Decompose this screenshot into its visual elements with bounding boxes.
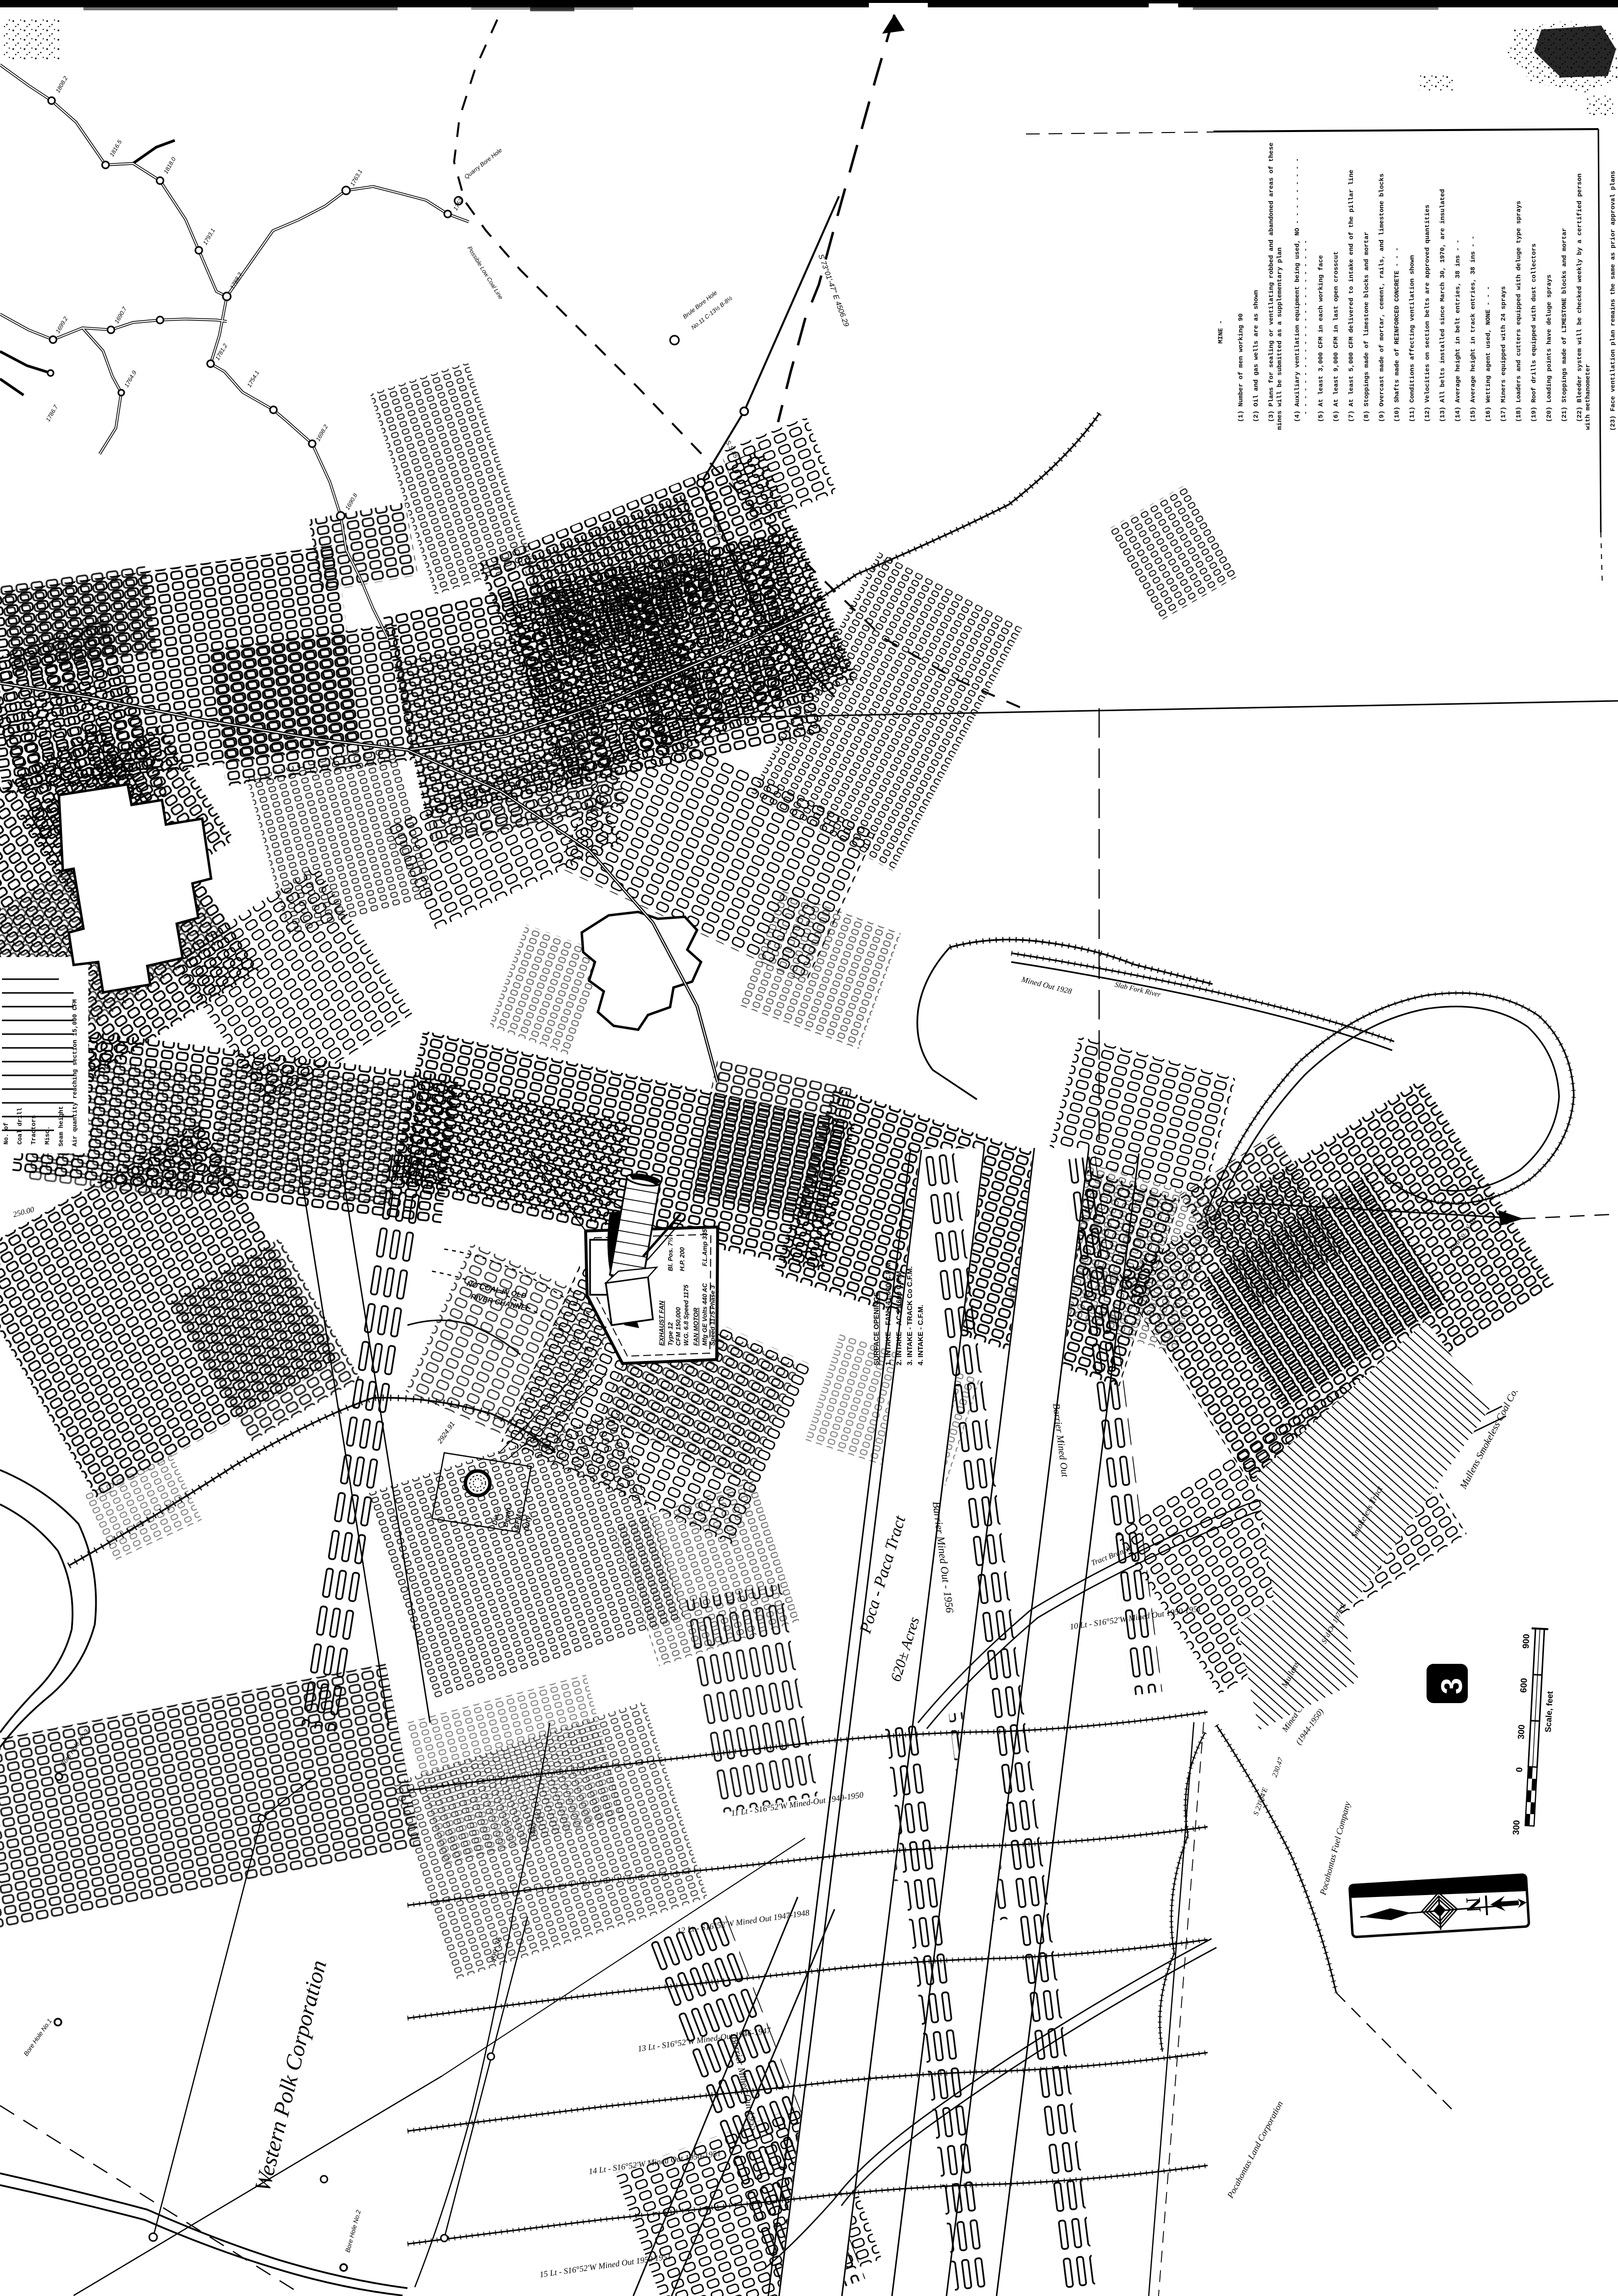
- svg-text:3: 3: [1435, 1678, 1468, 1694]
- svg-text:(5) At least 3,000 CFM in eac: (5) At least 3,000 CFM in each working f…: [1317, 255, 1324, 422]
- svg-text:300: 300: [1511, 1820, 1522, 1835]
- svg-text:H.P. 200: H.P. 200: [678, 1247, 686, 1271]
- svg-text:Bl. Pos. 7½: Bl. Pos. 7½: [667, 1237, 674, 1271]
- svg-text:(11) Conditions affecting vent: (11) Conditions affecting ventilation sh…: [1408, 255, 1416, 422]
- svg-text:(1) Number of men working 9: (1) Number of men working 90: [1237, 313, 1244, 422]
- svg-text:mines will be submitted as a s: mines will be submitted as a supplementa…: [1276, 247, 1283, 430]
- svg-text:Type 12: Type 12: [667, 1322, 674, 1346]
- svg-text:(15) Average height in track e: (15) Average height in track entries, 38…: [1469, 236, 1477, 422]
- svg-text:300: 300: [1516, 1724, 1527, 1739]
- svg-text:3. INTAKE - TRACK Co C.: 3. INTAKE - TRACK Co C.F.M.: [906, 1266, 914, 1365]
- svg-text:(19) Roof drills equipped with: (19) Roof drills equipped with dust coll…: [1530, 243, 1537, 422]
- svg-text:with methanometer: with methanometer: [1584, 364, 1591, 430]
- svg-text:0: 0: [1514, 1767, 1524, 1772]
- svg-text:(22) Bleeder system will be ch: (22) Bleeder system will be checked week…: [1576, 173, 1583, 422]
- svg-text:(12) Velocities on section bel: (12) Velocities on section belts are app…: [1424, 205, 1431, 422]
- svg-text:- - - - - - - - - - - - - - -: - - - - - - - - - - - - - - - - - - - - …: [1302, 240, 1309, 415]
- svg-text:(13) All belts installed since: (13) All belts installed since March 30,…: [1439, 189, 1446, 422]
- svg-text:(7) At least 5,000 CFM delive: (7) At least 5,000 CFM delivered to inta…: [1348, 170, 1355, 422]
- svg-text:(18) Loaders and cutters equip: (18) Loaders and cutters equipped with d…: [1515, 201, 1522, 422]
- svg-text:F.L.Amp 335: F.L.Amp 335: [701, 1228, 708, 1266]
- svg-text:(14) Average height in belt en: (14) Average height in belt entries, 38 …: [1454, 240, 1461, 422]
- svg-text:Tractors: Tractors: [30, 1115, 37, 1145]
- svg-text:600: 600: [1518, 1678, 1529, 1693]
- svg-text:FAN MOTOR: FAN MOTOR: [692, 1308, 700, 1346]
- svg-text:Speed 1175 Phase 3: Speed 1175 Phase 3: [709, 1285, 716, 1346]
- svg-text:(3) Plans for sealing or vent: (3) Plans for sealing or ventilating rob…: [1267, 142, 1275, 422]
- svg-text:(16) Wetting agent used, NON: (16) Wetting agent used, NONE - - -: [1484, 286, 1492, 422]
- svg-text:4. INTAKE - C.: 4. INTAKE - C.F.M.: [917, 1305, 925, 1365]
- svg-text:(2) Oil and gas wells are as: (2) Oil and gas wells are as shown: [1252, 290, 1260, 422]
- svg-text:SURFACE OPENINGS: SURFACE OPENINGS: [873, 1292, 881, 1365]
- svg-text:EXHAUST FAN: EXHAUST FAN: [658, 1301, 665, 1346]
- svg-text:No. of: No. of: [3, 1122, 10, 1145]
- svg-text:(4) Auxiliary ventilation equ: (4) Auxiliary ventilation equipment bein…: [1294, 158, 1301, 422]
- svg-text:(9) Overcast made of mortar,: (9) Overcast made of mortar, cement, rai…: [1378, 173, 1385, 422]
- svg-text:Seam height: Seam height: [58, 1106, 65, 1147]
- svg-text:Coal drill: Coal drill: [17, 1108, 24, 1145]
- svg-text:(17) Miners equipped with 24: (17) Miners equipped with 24 sprays: [1500, 286, 1507, 422]
- svg-text:N: N: [1461, 1896, 1485, 1913]
- svg-text:(20) Loading points have delug: (20) Loading points have deluge sprays: [1545, 274, 1553, 422]
- svg-text:(8) Stoppings made of limesto: (8) Stoppings made of limestone blocks a…: [1363, 232, 1370, 422]
- svg-text:1. INTAKE - FAN 141,600 C.: 1. INTAKE - FAN 141,600 C.F.M.: [885, 1261, 892, 1365]
- svg-text:MINE -: MINE -: [1217, 320, 1224, 344]
- svg-text:900: 900: [1521, 1633, 1532, 1649]
- svg-text:W.G. 6.8 Speed 1175: W.G. 6.8 Speed 1175: [682, 1284, 690, 1346]
- svg-text:Air quantity reaching section: Air quantity reaching section 15,000 CFM: [72, 999, 79, 1147]
- svg-text:(21) Stoppings made of LIMEST: (21) Stoppings made of LIMESTONE blocks …: [1561, 228, 1568, 422]
- svg-text:Mfg GE Volts 440 AC: Mfg GE Volts 440 AC: [701, 1283, 708, 1346]
- svg-text:(23) Face ventilation plan rem: (23) Face ventilation plan remains the s…: [1609, 171, 1617, 431]
- svg-text:2. INTAKE - AC 21,600 C.: 2. INTAKE - AC 21,600 C.F.M.: [895, 1269, 903, 1365]
- svg-text:(10) Shafts made of REINFORC: (10) Shafts made of REINFORCED CONCRETE …: [1393, 247, 1401, 422]
- svg-text:(6) At least 9,000 CFM in las: (6) At least 9,000 CFM in last open cros…: [1332, 251, 1340, 422]
- svg-text:CFM 150,000: CFM 150,000: [674, 1307, 682, 1346]
- svg-text:Misc.: Misc.: [44, 1126, 51, 1145]
